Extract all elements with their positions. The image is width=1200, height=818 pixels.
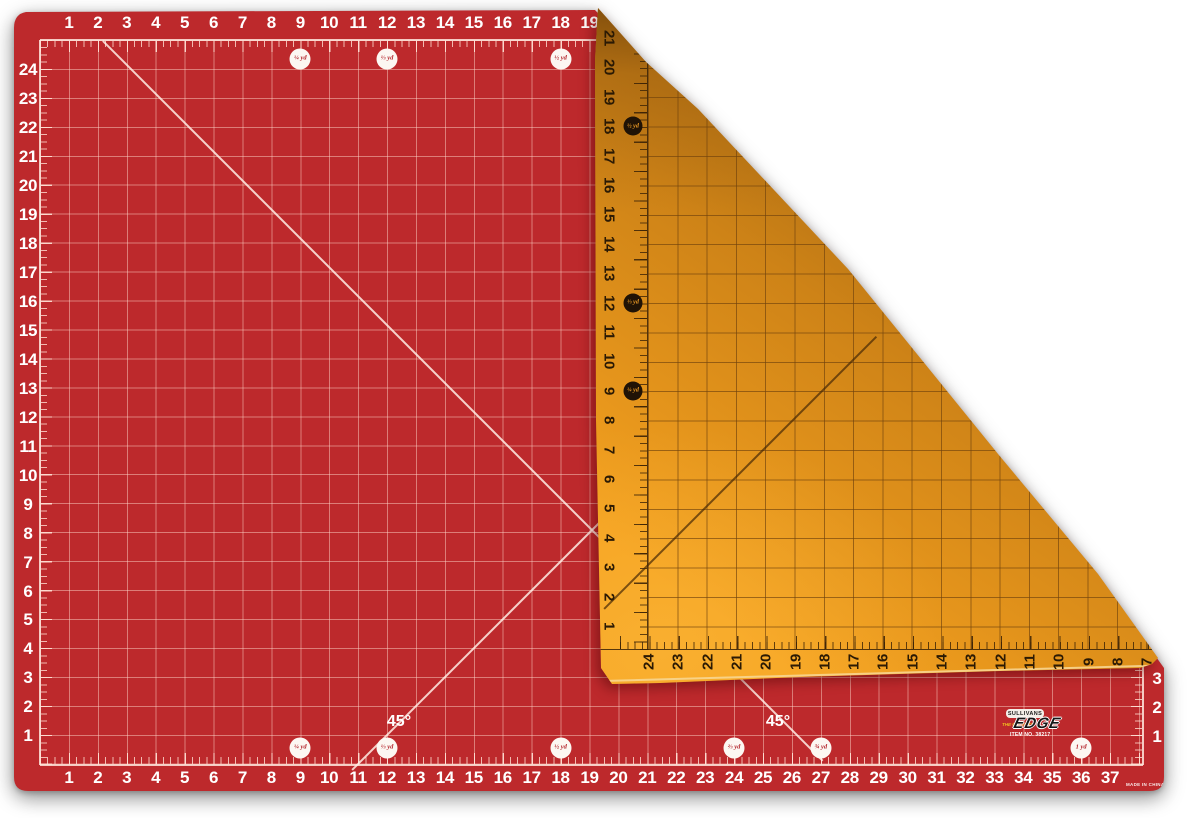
ruler-number: 14 xyxy=(601,236,618,252)
ruler-number: 10 xyxy=(1051,654,1068,670)
ruler-number: 17 xyxy=(846,654,863,670)
ruler-number: 15 xyxy=(904,654,921,670)
ruler-number: 9 xyxy=(601,387,618,395)
folded-corner-back-side: 212019181716151413121110987654321 242322… xyxy=(0,0,1200,818)
ruler-number: 22 xyxy=(699,654,716,670)
ruler-number: 8 xyxy=(601,416,618,424)
ruler-number: 10 xyxy=(601,353,618,369)
ruler-number: 9 xyxy=(1080,658,1097,666)
ruler-number: 24 xyxy=(641,654,658,670)
yard-marker: ½ yd xyxy=(624,117,643,136)
flap-side-tick-marks-minor xyxy=(640,24,647,650)
ruler-number: 17 xyxy=(601,148,618,164)
flap-inch-grid xyxy=(648,9,1154,650)
ruler-number: 7 xyxy=(1139,658,1156,666)
ruler-number: 7 xyxy=(601,446,618,454)
ruler-number: 4 xyxy=(601,534,618,542)
yard-marker: ⅓ yd xyxy=(624,293,643,312)
ruler-number: 8 xyxy=(1109,658,1126,666)
ruler-number: 12 xyxy=(992,654,1009,670)
ruler-number: 5 xyxy=(601,504,618,512)
ruler-number: 13 xyxy=(601,265,618,281)
ruler-number: 20 xyxy=(601,59,618,75)
ruler-number: 11 xyxy=(601,324,618,339)
ruler-number: 1 xyxy=(601,622,618,630)
ruler-number: 23 xyxy=(670,654,687,670)
ruler-number: 14 xyxy=(934,654,951,670)
flap-edge-tick-marks-minor xyxy=(620,642,1152,649)
ruler-number: 16 xyxy=(875,654,892,670)
flap-shadow-wrapper: 212019181716151413121110987654321 242322… xyxy=(0,0,1200,818)
cutting-mat-photo: 45° 45° 12345678910111213141516171819 12… xyxy=(0,0,1200,818)
ruler-number: 21 xyxy=(601,30,618,46)
yard-marker: ¼ yd xyxy=(624,381,643,400)
ruler-number: 19 xyxy=(601,89,618,105)
ruler-number: 16 xyxy=(601,177,618,193)
ruler-number: 3 xyxy=(601,563,618,571)
ruler-number: 6 xyxy=(601,475,618,483)
ruler-number: 19 xyxy=(787,654,804,670)
ruler-number: 18 xyxy=(601,118,618,134)
ruler-number: 15 xyxy=(601,206,618,222)
ruler-number: 13 xyxy=(963,654,980,670)
ruler-number: 18 xyxy=(816,654,833,670)
ruler-number: 12 xyxy=(601,295,618,311)
ruler-number: 2 xyxy=(601,593,618,601)
ruler-number: 11 xyxy=(1021,654,1038,669)
ruler-number: 20 xyxy=(758,654,775,670)
ruler-number: 21 xyxy=(728,654,745,670)
